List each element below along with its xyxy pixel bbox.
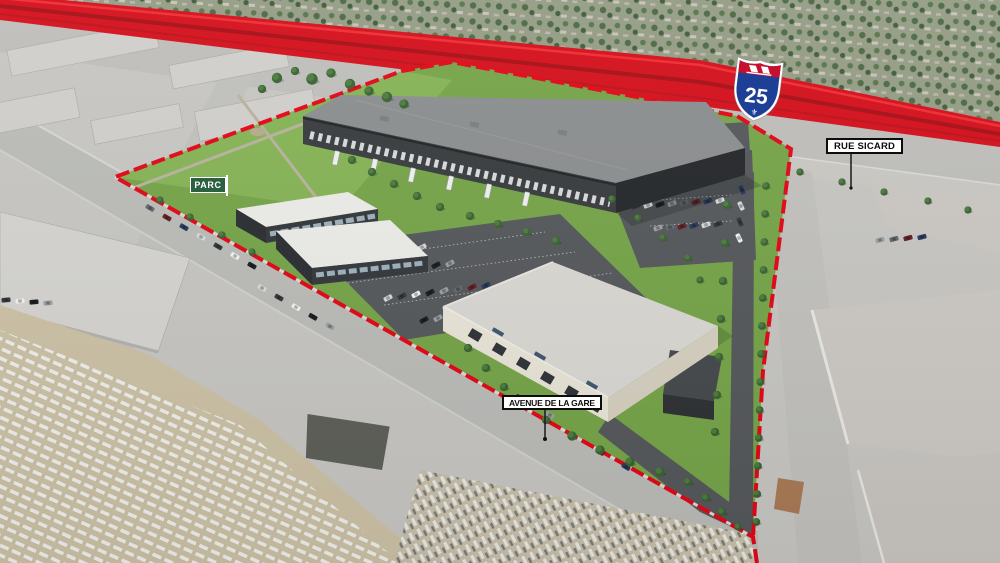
fleur-de-lis-icon: ⚜ bbox=[750, 107, 758, 117]
avenue-de-la-gare-label: AVENUE DE LA GARE bbox=[502, 395, 602, 410]
park-label-tick bbox=[226, 175, 228, 196]
aerial-scene: 25 ⚜ bbox=[0, 0, 1000, 563]
rue-sicard-label: RUE SICARD bbox=[826, 138, 903, 154]
photo-vignette bbox=[0, 0, 1000, 563]
shield-number: 25 bbox=[743, 84, 769, 110]
site-plan-rendering: 25 ⚜ PARC AVENUE DE LA GARE RUE SICARD bbox=[0, 0, 1000, 563]
park-label: PARC bbox=[190, 177, 226, 193]
park-label-text: PARC bbox=[194, 180, 221, 190]
